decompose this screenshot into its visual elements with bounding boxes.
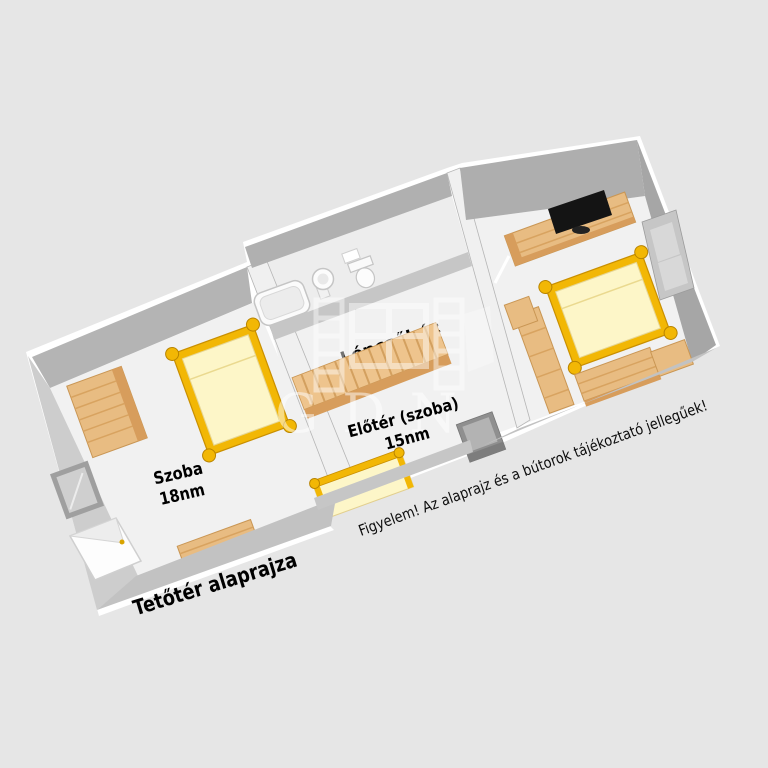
floorplan-image: Lépcsőház — [0, 0, 768, 768]
window-handle — [120, 540, 125, 545]
floorplan-svg: Lépcsőház — [0, 0, 768, 768]
